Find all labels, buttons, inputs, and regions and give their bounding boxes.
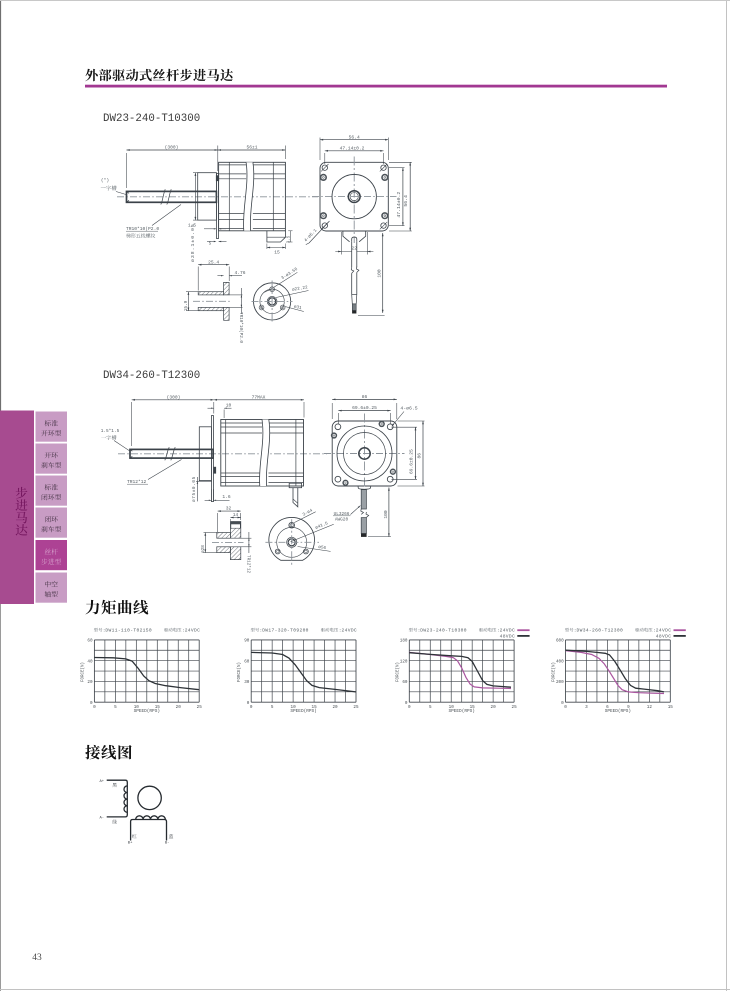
svg-text:3-ø4: 3-ø4 xyxy=(302,508,314,518)
svg-text:ø31: ø31 xyxy=(293,304,302,311)
svg-text:12: 12 xyxy=(647,705,653,710)
svg-text:AWG20: AWG20 xyxy=(335,517,349,522)
svg-text:5: 5 xyxy=(429,705,432,710)
svg-text:1.5*1.5: 1.5*1.5 xyxy=(101,429,120,434)
svg-text:DW11-110-T02150: DW11-110-T02150 xyxy=(105,628,152,634)
svg-text:B+: B+ xyxy=(128,841,133,845)
svg-text:43: 43 xyxy=(32,953,42,963)
svg-text:48VDC: 48VDC xyxy=(656,633,672,639)
svg-text:0: 0 xyxy=(250,705,253,710)
svg-text:48VDC: 48VDC xyxy=(500,633,516,639)
svg-text:ø22.22: ø22.22 xyxy=(292,285,309,292)
svg-text:5: 5 xyxy=(271,705,274,710)
svg-text:3: 3 xyxy=(585,705,588,710)
svg-text:30: 30 xyxy=(244,680,250,685)
svg-text:ø41.5: ø41.5 xyxy=(315,521,329,531)
svg-text:FORCE(N): FORCE(N) xyxy=(80,662,85,682)
svg-text:15: 15 xyxy=(274,250,280,256)
svg-text:(300): (300) xyxy=(167,394,181,400)
svg-text:56±1: 56±1 xyxy=(246,145,257,151)
svg-text:0: 0 xyxy=(93,705,96,710)
svg-text:69.6±0.25: 69.6±0.25 xyxy=(352,405,377,411)
svg-text:A-: A- xyxy=(100,817,105,821)
svg-text:20: 20 xyxy=(87,680,93,685)
svg-text:(*): (*) xyxy=(101,178,109,184)
svg-text:24VDC: 24VDC xyxy=(185,628,201,634)
svg-text:86: 86 xyxy=(362,394,368,400)
svg-text:20: 20 xyxy=(332,705,338,710)
svg-text:47.14±0.2: 47.14±0.2 xyxy=(396,192,402,218)
svg-text:25: 25 xyxy=(353,705,359,710)
svg-text:24VDC: 24VDC xyxy=(656,628,672,634)
svg-text:86: 86 xyxy=(416,453,422,459)
svg-text:3-ø3.56: 3-ø3.56 xyxy=(281,267,299,281)
svg-text:40: 40 xyxy=(87,659,93,664)
svg-text:47.14±0.2: 47.14±0.2 xyxy=(340,145,365,151)
svg-text:56.4: 56.4 xyxy=(403,195,409,207)
svg-text:FORCE(N): FORCE(N) xyxy=(552,662,557,682)
svg-text:SPEED(RPS): SPEED(RPS) xyxy=(134,709,160,714)
svg-text:20: 20 xyxy=(176,705,182,710)
svg-text:DW23-240-T10300: DW23-240-T10300 xyxy=(420,628,467,634)
svg-text:24VDC: 24VDC xyxy=(500,628,516,634)
svg-text:600: 600 xyxy=(556,639,564,644)
svg-text:3.5: 3.5 xyxy=(287,235,291,243)
svg-text:B-: B- xyxy=(165,841,170,845)
svg-text:TR10*10(P2.0: TR10*10(P2.0 xyxy=(238,312,243,343)
svg-text:DW34-260-T12300: DW34-260-T12300 xyxy=(103,370,200,382)
svg-text:20: 20 xyxy=(491,705,497,710)
svg-text:14: 14 xyxy=(233,513,239,518)
svg-text:120: 120 xyxy=(400,659,408,664)
svg-text:1.5: 1.5 xyxy=(188,224,196,229)
svg-text:A+: A+ xyxy=(100,780,105,784)
svg-text:4-ø6.5: 4-ø6.5 xyxy=(400,406,417,412)
svg-text:10: 10 xyxy=(226,402,232,408)
svg-text:15: 15 xyxy=(668,705,674,710)
svg-text:77MAX: 77MAX xyxy=(252,394,266,400)
svg-text:1.6: 1.6 xyxy=(222,494,231,500)
svg-text:24VDC: 24VDC xyxy=(342,628,358,634)
svg-text:25: 25 xyxy=(512,705,518,710)
svg-text:0: 0 xyxy=(408,705,411,710)
svg-text:60: 60 xyxy=(87,639,93,644)
svg-text:15.9: 15.9 xyxy=(184,300,189,311)
svg-text:400: 400 xyxy=(556,659,564,664)
svg-text:SPEED(RPS): SPEED(RPS) xyxy=(605,709,631,714)
svg-text:ø38.1±0.05: ø38.1±0.05 xyxy=(190,223,196,262)
svg-text:FORCE(N): FORCE(N) xyxy=(237,662,242,682)
svg-text:0: 0 xyxy=(564,705,567,710)
svg-text:ø56: ø56 xyxy=(318,545,327,551)
svg-text:200: 200 xyxy=(556,680,564,685)
svg-text:5: 5 xyxy=(114,705,117,710)
svg-text:ø75±0.05: ø75±0.05 xyxy=(192,476,197,502)
svg-text:100: 100 xyxy=(383,510,389,519)
svg-text:(300): (300) xyxy=(165,145,179,151)
svg-text:4.76: 4.76 xyxy=(234,270,245,276)
svg-text:FORCE(N): FORCE(N) xyxy=(395,662,400,682)
svg-text:69.6±0.25: 69.6±0.25 xyxy=(409,449,415,474)
svg-text:DW17-320-T09200: DW17-320-T09200 xyxy=(262,628,309,634)
svg-text:DW34-260-T12300: DW34-260-T12300 xyxy=(577,628,624,634)
svg-text:5: 5 xyxy=(209,242,212,247)
svg-text:ø28: ø28 xyxy=(201,545,206,553)
svg-text:56.4: 56.4 xyxy=(349,134,360,140)
svg-text:60: 60 xyxy=(244,659,250,664)
svg-text:25.4: 25.4 xyxy=(208,259,219,265)
svg-text:25: 25 xyxy=(197,705,203,710)
svg-text:90: 90 xyxy=(244,639,250,644)
svg-text:100: 100 xyxy=(377,269,383,278)
svg-text:60: 60 xyxy=(402,680,408,685)
svg-text:180: 180 xyxy=(400,639,408,644)
svg-text:SPEED(RPS): SPEED(RPS) xyxy=(290,709,316,714)
svg-text:DW23-240-T10300: DW23-240-T10300 xyxy=(103,113,200,125)
svg-text:TR12*12: TR12*12 xyxy=(245,555,250,573)
svg-text:32: 32 xyxy=(226,506,232,512)
svg-text:SPEED(RPS): SPEED(RPS) xyxy=(449,709,475,714)
